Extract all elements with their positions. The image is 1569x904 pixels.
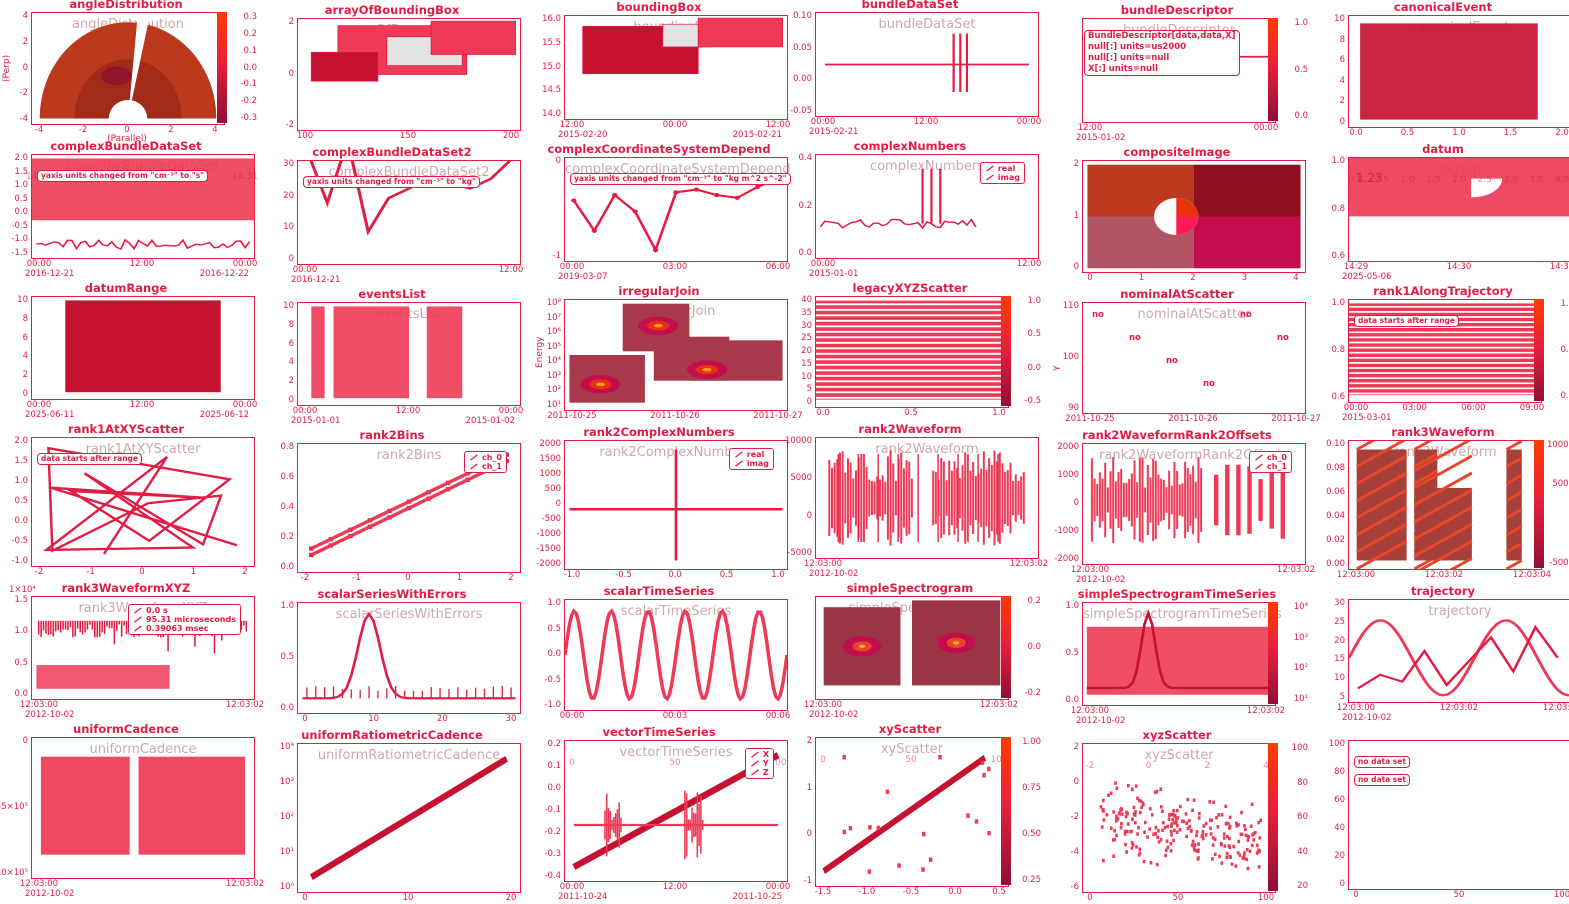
plot-title: vectorTimeSeries [528, 725, 790, 739]
plot-cell-eventsList[interactable]: eventsList eventsList 108642000:0012:000… [261, 287, 523, 428]
nominal-label: no [1240, 310, 1252, 320]
y-tick: 10² [280, 812, 294, 822]
plot-axes: nominalAtScatter [1082, 302, 1306, 414]
y-tick: 10 [283, 222, 294, 232]
y-tick: 60 [1334, 795, 1345, 805]
plot-cell-complexBundleDataSet2[interactable]: complexBundleDataSet2 complexBundleDataS… [261, 145, 523, 287]
legend-line-icon [133, 625, 143, 632]
x-date-label: 2011-10-25 [733, 892, 782, 902]
y-tick: 1.0 [14, 626, 28, 636]
legend-label: Z [763, 768, 769, 777]
x-tick: 150 [400, 131, 416, 141]
y-tick: 0.0 [280, 562, 294, 572]
plot-title: rank2WaveformRank2Offsets [1046, 428, 1308, 442]
y-tick: 0.04 [1326, 511, 1345, 521]
y-axis-label: Energy [535, 336, 545, 368]
plot-cell-complexNumbers[interactable]: complexNumbers complexNumbers 0.40.20.00… [779, 139, 1041, 281]
x-tick: 0 [302, 714, 307, 724]
plot-cell-irregularJoin[interactable]: irregularJoin irregularJoin 10⁸10⁷10⁶10⁵… [528, 284, 790, 425]
x-tick: 2 [168, 125, 173, 135]
legend-line-icon [469, 463, 479, 470]
colorbar [217, 12, 227, 123]
plot-axes: scalarSeriesWithErrors [297, 602, 521, 714]
plot-title: canonicalEvent [1312, 0, 1569, 14]
y-tick: -1.0 [544, 700, 561, 710]
y-tick: 0.05 [793, 43, 812, 53]
colorbar [1534, 440, 1544, 568]
x-tick: 20 [506, 893, 517, 903]
ghost-x-tick: 14:31 [232, 172, 258, 182]
y-tick: 0.10 [793, 11, 812, 21]
legend-line-icon [734, 460, 744, 467]
plot-cell-canonicalEvent[interactable]: canonicalEvent canonicalEvent 10864200.0… [1312, 0, 1569, 142]
plot-title: xyScatter [779, 722, 1041, 736]
colorbar-tick: -0.2 [240, 96, 257, 106]
plot-cell-uniformRatiometricCadence[interactable]: uniformRatiometricCadence uniformRatiome… [261, 728, 523, 904]
compositeImage-sketch [1083, 161, 1305, 272]
y-tick: 40 [801, 295, 812, 305]
y-tick: 8 [1340, 35, 1345, 45]
uniformRatiometricCadence-sketch [298, 744, 520, 892]
y-tick: -6 [1071, 882, 1079, 892]
x-tick: 0 [1087, 273, 1092, 283]
nominal-label: no [1277, 333, 1289, 343]
x-tick: 12:03:02 [1247, 706, 1285, 716]
y-tick: 0.00 [793, 74, 812, 84]
colorbar-tick: 10⁴ [1294, 602, 1308, 612]
y-tick: 10⁰ [280, 882, 294, 892]
colorbar-tick: 0.5 [1027, 329, 1041, 339]
y-tick: 0.2 [280, 532, 294, 542]
angleDistribution-sketch [32, 13, 224, 124]
plot-cell-scalarSeriesWithErrors[interactable]: scalarSeriesWithErrors scalarSeriesWithE… [261, 587, 523, 728]
y-tick: 0.0 [547, 783, 561, 793]
x-tick: 12:03:02 [1440, 703, 1478, 713]
plot-axes: angleDistribution [31, 12, 225, 125]
y-tick: 0 [1340, 117, 1345, 127]
x-tick: 00:00 [663, 120, 688, 130]
colorbar-tick: 0.0 [1027, 642, 1041, 652]
x-date-label: 2015-01-01 [291, 416, 340, 426]
y-tick: 14.0 [542, 109, 561, 119]
colorbar [1001, 596, 1011, 698]
y-tick: 10⁸ [547, 298, 561, 308]
simpleSpectrogramTimeSeries-sketch [1083, 603, 1275, 705]
y-tick: 0 [23, 736, 28, 746]
y-tick: 2 [289, 376, 294, 386]
colorbar-tick: 20 [1297, 881, 1308, 891]
x-date-label: 2015-01-01 [809, 269, 858, 279]
y-tick: -0.3 [544, 849, 561, 859]
ghost-x-tick: 0 [569, 758, 575, 768]
plot-axes: xyzScatter [1082, 743, 1276, 893]
legend-label: imag [998, 173, 1020, 182]
x-tick: 12:00 [1078, 123, 1103, 133]
plot-cell-rank1AlongTrajectory[interactable]: rank1AlongTrajectory rank1AlongTrajector… [1312, 284, 1569, 425]
y-axis-label: Y [1053, 366, 1063, 372]
y-tick: 20 [283, 191, 294, 201]
x-tick: -4 [35, 125, 43, 135]
y-tick: 100 [1063, 352, 1079, 362]
x-tick: 12:00 [130, 400, 155, 410]
y-tick: 2 [23, 370, 28, 380]
colorbar-tick: -0.2 [1024, 688, 1041, 698]
plot-title: complexBundleDataSet [0, 139, 257, 153]
legend-entry: real [985, 164, 1020, 173]
legend-label: real [747, 450, 765, 459]
y-tick: 0 [289, 254, 294, 264]
x-date-label: 2015-03-01 [1342, 413, 1391, 423]
x-tick: 12:03:00 [1071, 565, 1109, 575]
y-tick: 8 [289, 320, 294, 330]
y-tick: 2 [807, 736, 812, 746]
plot-axes: irregularJoin [564, 299, 788, 411]
y-tick: 90 [1068, 403, 1079, 413]
y-tick: -4 [20, 114, 28, 124]
plot-legend[interactable]: realimag [729, 448, 774, 470]
x-tick: 12:03:00 [804, 559, 842, 569]
x-tick: 12:00 [914, 117, 939, 127]
x-date-label: 2012-10-02 [25, 889, 74, 899]
plot-title: complexBundleDataSet2 [261, 145, 523, 159]
plot-cell-rank2Waveform[interactable]: rank2Waveform rank2Waveform 1000050000-5… [779, 422, 1041, 581]
nominal-label: no [1203, 379, 1215, 389]
colorbar-tick: 0.25 [1022, 875, 1041, 885]
plot-title: nominalAtScatter [1046, 287, 1308, 301]
y-tick: 5 [807, 384, 812, 394]
x-date-label: 2016-12-22 [200, 269, 249, 279]
x-tick: 2011-10-25 [1065, 414, 1114, 424]
colorbar-tick: 0.1 [243, 46, 257, 56]
plot-cell-xyScatter[interactable]: xyScatter xyScatter 210-1-1.5-1.0-0.50.0… [779, 722, 1041, 901]
y-tick: 80 [1334, 767, 1345, 777]
legend-label: imag [747, 459, 769, 468]
plot-cell-simpleSpectrogram[interactable]: simpleSpectrogram simpleSpectrogram 12:0… [779, 581, 1041, 722]
plot-cell-compositeImage[interactable]: compositeImage compositeImage 21001234 [1046, 145, 1308, 287]
y-tick: 20 [1334, 851, 1345, 861]
colorbar-tick: 10000 [1547, 440, 1569, 450]
x-tick: 50 [1454, 890, 1465, 900]
boundingBox-sketch [565, 16, 787, 119]
datumRange-sketch [32, 297, 254, 399]
y-tick: 0.0 [14, 689, 28, 699]
eventsList-sketch [298, 303, 520, 405]
legend-entry: 0.0 s [133, 606, 236, 615]
ghost-x-tick: 2 [1204, 761, 1210, 771]
colorbar-tick: 0.3 [243, 12, 257, 22]
y-tick: -2000 [536, 559, 561, 569]
simpleSpectrogram-sketch [816, 597, 1008, 699]
nominal-label: no [1166, 356, 1178, 366]
legend-entry: real [734, 450, 769, 459]
y-tick: -0.5 [11, 536, 28, 546]
x-tick: 4 [212, 125, 217, 135]
xyzScatter-sketch [1083, 744, 1275, 892]
plot-title: uniformRatiometricCadence [261, 728, 523, 742]
x-tick: 14:29 [1344, 262, 1369, 272]
plot-title: scalarSeriesWithErrors [261, 587, 523, 601]
y-tick: 0.2 [798, 201, 812, 211]
y-tick: 0 [23, 389, 28, 399]
plot-cell-legacyXYZScatter[interactable]: legacyXYZScatter legacyXYZScatter 403530… [779, 281, 1041, 422]
descriptor-line: X[:] units=null [1088, 64, 1236, 75]
x-tick: 2 [242, 567, 247, 577]
x-tick: 0 [1353, 890, 1358, 900]
x-date-label: 2012-10-02 [1342, 713, 1391, 723]
y-tick: -0.05 [790, 106, 812, 116]
x-tick: 00:00 [27, 259, 52, 269]
y-tick: 10 [17, 295, 28, 305]
colorbar [1268, 18, 1278, 121]
plot-cell-rank1AtXYScatter[interactable]: rank1AtXYScatter rank1AtXYScatter 2.01.5… [0, 422, 257, 581]
x-tick: 12:03:00 [20, 879, 58, 889]
plot-cell-angleDistribution[interactable]: angleDistribution angleDistribution 420-… [0, 0, 257, 139]
plot-cell-vectorTimeSeries[interactable]: vectorTimeSeries vectorTimeSeries 0.20.1… [528, 725, 790, 904]
y-tick: 14.5 [542, 85, 561, 95]
x-tick: 0 [139, 567, 144, 577]
x-tick: 30 [506, 714, 517, 724]
x-tick: 00:00 [233, 400, 258, 410]
legend-line-icon [985, 165, 995, 172]
legend-entry: 95.31 microseconds [133, 615, 236, 624]
y-tick: 1.5 [14, 456, 28, 466]
x-tick: 00:00 [27, 400, 52, 410]
plot-legend[interactable]: 0.0 s95.31 microseconds0.39063 msec [128, 604, 241, 635]
plot-axes: uniformCadence [31, 737, 255, 879]
plot-cell-arrayOfBoundingBox[interactable]: arrayOfBoundingBox arrayOfBoundingBox 20… [261, 3, 523, 145]
y-tick: -2000 [1054, 554, 1079, 564]
x-date-label: 2016-12-21 [25, 269, 74, 279]
y-tick: 1000 [539, 469, 561, 479]
plot-cell-trajectory[interactable]: trajectory trajectory 3025201510512:03:0… [1312, 584, 1569, 725]
y-tick: 10⁷ [547, 313, 561, 323]
y-tick: 0.5 [1065, 648, 1079, 658]
x-tick: 00:00 [233, 259, 258, 269]
colorbar-tick: 0.0 [1027, 363, 1041, 373]
descriptor-line: BundleDescriptor[data,data,X] [1088, 31, 1236, 42]
y-tick: 6 [1340, 55, 1345, 65]
plot-axes: scalarTimeSeries [564, 599, 788, 711]
legend-line-icon [1254, 454, 1264, 461]
rank3Waveform-sketch [1349, 441, 1541, 569]
x-tick: 06:00 [1461, 403, 1486, 413]
x-tick: 00:00 [811, 259, 836, 269]
x-tick: -1.0 [859, 887, 876, 897]
y-tick: 0.5 [547, 624, 561, 634]
y-tick: 10³ [280, 777, 294, 787]
x-tick: -2 [79, 125, 87, 135]
y-tick: 1 [1074, 211, 1079, 221]
plot-axes: canonicalEvent [1348, 15, 1569, 128]
legend-line-icon [985, 174, 995, 181]
ghost-x-tick: 1.0 [1400, 175, 1414, 185]
legend-label: ch_1 [1267, 462, 1287, 471]
nominal-label: no [1092, 310, 1104, 320]
y-tick: 0.5 [280, 652, 294, 662]
x-date-label: 2012-10-02 [1076, 716, 1125, 726]
x-tick: 12:03:04 [1513, 570, 1551, 580]
colorbar-tick: 0.75 [1022, 783, 1041, 793]
y-tick: 20 [801, 346, 812, 356]
plot-cell-rank2WaveformRank2Offsets[interactable]: rank2WaveformRank2Offsets rank2WaveformR… [1046, 428, 1308, 587]
y-tick: -1500 [536, 544, 561, 554]
y-tick: 1.0 [547, 598, 561, 608]
legend-entry: imag [734, 459, 769, 468]
colorbar-tick: 0.5 [1294, 65, 1308, 75]
y-tick: 5 [1340, 692, 1345, 702]
plot-title: eventsList [261, 287, 523, 301]
x-tick: 50 [1173, 893, 1184, 903]
x-tick: 2011-10-26 [1168, 414, 1217, 424]
plot-cell-rank3Waveform[interactable]: rank3Waveform rank3Waveform 0.100.080.06… [1312, 425, 1569, 584]
plot-cell-datum[interactable]: datum datum 1.00.80.614:2914:3014:310.00… [1312, 142, 1569, 284]
y-tick: -5×10⁵ [0, 802, 28, 812]
plot-cell-scalarTimeSeries[interactable]: scalarTimeSeries scalarTimeSeries 1.00.5… [528, 584, 790, 725]
legend-label: 0.39063 msec [146, 624, 209, 633]
y-tick: 0.8 [1331, 345, 1345, 355]
x-tick: 0.5 [1401, 128, 1415, 138]
y-tick: 2 [1074, 159, 1079, 169]
plot-cell-complexBundleDataSet[interactable]: complexBundleDataSet complexBundleDataSe… [0, 139, 257, 281]
colorbar-tick: 40 [1297, 847, 1308, 857]
colorbar-tick: 1.0 [1294, 18, 1308, 28]
plot-legend[interactable]: ch_0ch_1 [464, 451, 507, 473]
y-tick: -10×10⁵ [0, 868, 28, 878]
y-tick: 0 [556, 499, 561, 509]
plot-legend[interactable]: XYZ [745, 748, 774, 779]
y-tick: 0.0 [547, 649, 561, 659]
plot-title: arrayOfBoundingBox [261, 3, 523, 17]
plot-cell-complexCoordinateSystemDependent[interactable]: complexCoordinateSystemDepend complexCoo… [528, 142, 790, 284]
y-tick: 10⁶ [547, 327, 561, 337]
x-tick: 12:00 [663, 882, 688, 892]
legend-label: 95.31 microseconds [146, 615, 236, 624]
y-tick: 0.4 [798, 153, 812, 163]
y-tick: 4 [23, 351, 28, 361]
x-tick: 0.5 [720, 570, 734, 580]
plot-cell-rank3WaveformXYZ[interactable]: rank3WaveformXYZ rank3WaveformXYZ 1.51.0… [0, 581, 257, 722]
trajectory-sketch [1349, 600, 1569, 702]
colorbar [1001, 737, 1011, 885]
x-tick: 12:00 [499, 265, 524, 275]
plot-title: rank2ComplexNumbers [528, 425, 790, 439]
plot-title: bundleDataSet [779, 0, 1041, 11]
plot-legend[interactable]: ch_0ch_1 [1249, 451, 1292, 473]
y-tick: 0 [1074, 498, 1079, 508]
plot-cell-empty-cell[interactable]: 100806040200050100no data setno data set [1312, 725, 1569, 904]
x-tick: 2.0 [1555, 128, 1569, 138]
colorbar [1534, 299, 1544, 401]
y-tick: 15 [801, 359, 812, 369]
x-tick: 200 [503, 131, 519, 141]
legend-line-icon [734, 451, 744, 458]
x-date-label: 2025-05-06 [1342, 272, 1391, 282]
legend-label: ch_0 [482, 453, 502, 462]
y-tick: 1.0 [1065, 601, 1079, 611]
plot-title: complexNumbers [779, 139, 1041, 153]
irregularJoin-sketch [565, 300, 787, 410]
plot-cell-bundleDataSet[interactable]: bundleDataSet bundleDataSet 0.100.050.00… [779, 0, 1041, 139]
plot-cell-nominalAtScatter[interactable]: nominalAtScatter nominalAtScatter 110100… [1046, 287, 1308, 428]
y-tick: 4 [289, 357, 294, 367]
y-tick: 10² [547, 385, 561, 395]
plot-axes: trajectory [1348, 599, 1569, 703]
x-date-label: 2012-10-02 [25, 710, 74, 720]
y-tick: 5000 [790, 473, 812, 483]
plot-cell-uniformCadence[interactable]: uniformCadence uniformCadence 0-5×10⁵-10… [0, 722, 257, 901]
y-tick: 16.0 [542, 14, 561, 24]
annotation-pill: no data set [1354, 756, 1410, 768]
x-tick: 0.5 [992, 887, 1006, 897]
y-tick: 6 [289, 339, 294, 349]
x-tick: 12:03:02 [1277, 565, 1315, 575]
x-tick: 0 [1087, 893, 1092, 903]
y-tick: 1.5 [14, 595, 28, 605]
legend-entry: ch_1 [1254, 462, 1287, 471]
y-tick: 0.0 [14, 207, 28, 217]
y-tick: -1000 [1054, 526, 1079, 536]
y-tick: 4 [23, 11, 28, 21]
plot-cell-boundingBox[interactable]: boundingBox boundingBox 16.015.515.014.5… [528, 0, 790, 142]
x-tick: -2 [35, 567, 43, 577]
ghost-x-tick: 3.5 [1529, 175, 1543, 185]
y-tick: 0.0 [280, 703, 294, 713]
plot-cell-datumRange[interactable]: datumRange datumRange 108642000:0012:000… [0, 281, 257, 422]
x-date-label: 2012-10-02 [1076, 575, 1125, 585]
annotation-pill: yaxis units changed from "cm⁻³" to "s" [37, 170, 208, 182]
legend-line-icon [469, 454, 479, 461]
y-tick: 0.1 [547, 761, 561, 771]
y-tick: -1 [804, 876, 812, 886]
y-tick: -1000 [536, 529, 561, 539]
x-tick: 20 [437, 714, 448, 724]
y-tick: 0 [556, 156, 561, 166]
legend-entry: imag [985, 173, 1020, 182]
colorbar-tick: 60 [1297, 812, 1308, 822]
colorbar-tick: -0.3 [240, 113, 257, 123]
plot-cell-rank2Bins[interactable]: rank2Bins rank2Bins 0.80.60.40.20.0-2-10… [261, 428, 523, 587]
colorbar-tick: 100 [1292, 743, 1308, 753]
y-tick: 0 [289, 69, 294, 79]
plot-legend[interactable]: realimag [980, 162, 1025, 184]
x-tick: 00:00 [560, 711, 585, 721]
plot-axes: arrayOfBoundingBox [297, 18, 521, 131]
legacyXYZScatter-sketch [816, 297, 1008, 407]
plot-cell-bundleDescriptor[interactable]: bundleDescriptor bundleDescriptor 12:000… [1046, 3, 1308, 145]
y-tick: 0.6 [280, 472, 294, 482]
y-tick: -1.0 [11, 556, 28, 566]
y-tick: 25 [1334, 617, 1345, 627]
plot-cell-xyzScatter[interactable]: xyzScatter xyzScatter 20-2-4-6050100-202… [1046, 728, 1308, 904]
plot-cell-rank2ComplexNumbers[interactable]: rank2ComplexNumbers rank2ComplexNumbers … [528, 425, 790, 584]
y-tick: 0 [807, 511, 812, 521]
x-tick: 12:03:02 [1425, 570, 1463, 580]
x-tick: 00:00 [293, 265, 318, 275]
y-tick: 0 [1340, 879, 1345, 889]
plot-cell-simpleSpectrogramTimeSeries[interactable]: simpleSpectrogramTimeSeries simpleSpectr… [1046, 587, 1308, 728]
ghost-x-tick: 1.5 [1426, 175, 1440, 185]
plot-title: complexCoordinateSystemDepend [528, 142, 790, 156]
y-tick: 100 [1329, 739, 1345, 749]
y-tick: 0.8 [280, 442, 294, 452]
y-tick: 0 [289, 395, 294, 405]
plot-gallery-canvas: angleDistribution angleDistribution 420-… [0, 0, 1569, 904]
x-date-label: 2015-01-02 [466, 416, 515, 426]
x-tick: 12:00 [396, 406, 421, 416]
x-tick: 0.0 [668, 570, 682, 580]
y-tick: 0.8 [1331, 204, 1345, 214]
uniformCadence-sketch [32, 738, 254, 878]
